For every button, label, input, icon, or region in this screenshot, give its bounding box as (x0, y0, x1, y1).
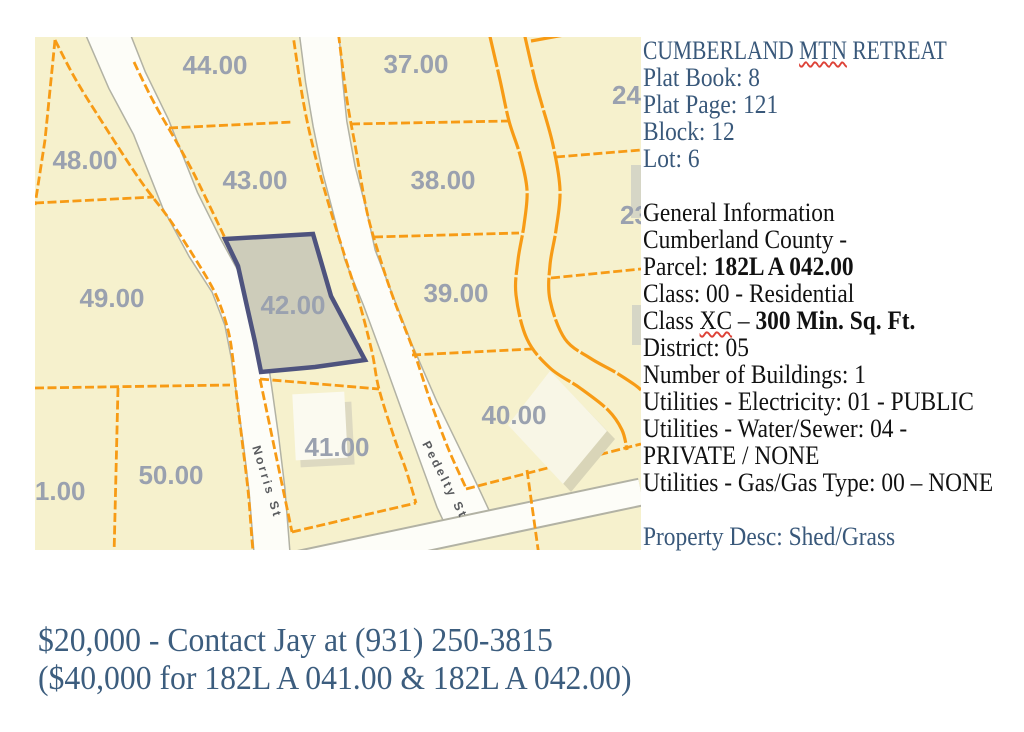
svg-text:44.00: 44.00 (182, 50, 247, 80)
svg-text:41.00: 41.00 (304, 432, 369, 462)
svg-text:48.00: 48.00 (52, 145, 117, 175)
svg-text:38.00: 38.00 (410, 165, 475, 195)
svg-text:51.00: 51.00 (35, 476, 86, 506)
svg-text:24.00: 24.00 (612, 80, 641, 110)
svg-text:43.00: 43.00 (222, 165, 287, 195)
svg-text:50.00: 50.00 (138, 460, 203, 490)
svg-text:42.00: 42.00 (260, 290, 325, 320)
svg-text:37.00: 37.00 (383, 49, 448, 79)
svg-text:39.00: 39.00 (423, 278, 488, 308)
svg-text:49.00: 49.00 (79, 283, 144, 313)
svg-text:40.00: 40.00 (481, 400, 546, 430)
svg-text:23.00: 23.00 (620, 200, 641, 230)
